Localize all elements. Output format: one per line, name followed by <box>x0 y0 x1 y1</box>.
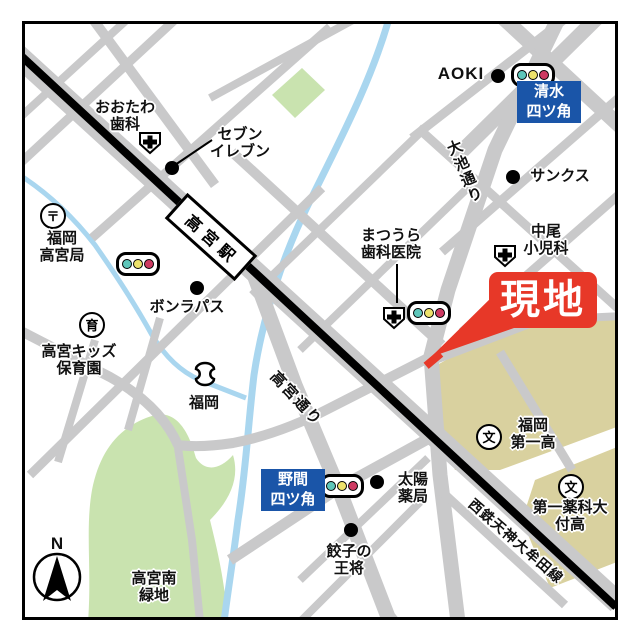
site-callout: 現地 <box>489 272 597 328</box>
nakao-pediatrics-label: 中尾 小児科 <box>523 223 568 258</box>
fukuoka-bank-label: 福岡 <box>189 394 219 411</box>
gyoza-ohsho-dot <box>344 523 358 537</box>
label-line: 高宮南 <box>131 570 176 587</box>
map-canvas: 高宮駅 〒 育 文 文 おおたわ 歯科 セブン <box>22 21 618 620</box>
label-line: 中尾 <box>523 223 568 240</box>
signal-station-west <box>116 252 160 276</box>
label-line: 第一高 <box>510 434 555 451</box>
noma-crossing-badge: 野間 四ツ角 <box>261 469 325 511</box>
signal-yellow-lamp <box>337 481 347 491</box>
fukuoka-daiichi-high-label: 福岡 第一高 <box>510 417 555 452</box>
signal-yellow-lamp <box>424 308 434 318</box>
matsuura-dental-label: まつうら 歯科医院 <box>361 227 421 262</box>
label-line: 小児科 <box>523 240 568 257</box>
signal-red-lamp <box>539 70 549 80</box>
map-frame: 高宮駅 〒 育 文 文 おおたわ 歯科 セブン <box>22 21 618 620</box>
shimizu-crossing-badge: 清水 四ツ角 <box>517 81 581 123</box>
label-line: 緑地 <box>131 587 176 604</box>
sunkus-dot <box>506 170 520 184</box>
signal-green-lamp <box>517 70 527 80</box>
nursery-icon: 育 <box>79 312 105 338</box>
label-line: 福岡 <box>39 230 84 247</box>
aoki-dot <box>491 69 505 83</box>
label-line: 高宮キッズ <box>41 343 116 360</box>
label-line: イレブン <box>210 143 270 160</box>
school-icon-yakka-high: 文 <box>558 474 584 500</box>
label-line: 第一薬科大 <box>532 499 607 516</box>
label-line: 太陽 <box>398 471 428 488</box>
seven-eleven-dot <box>165 161 179 175</box>
matsuura-cross-icon <box>384 308 404 328</box>
school-icon-daiichi-high: 文 <box>476 424 502 450</box>
signal-matsuura <box>407 301 451 325</box>
compass-north-label: N <box>51 534 63 554</box>
label-line: 福岡 <box>510 417 555 434</box>
label-line: 保育園 <box>41 360 116 377</box>
label-line: 高宮局 <box>39 247 84 264</box>
label-line: まつうら <box>361 227 421 244</box>
seven-eleven-label: セブン イレブン <box>210 126 270 161</box>
post-office-label: 福岡 高宮局 <box>39 230 84 265</box>
map-page: { "site_marker": { "label": "現地" }, "sta… <box>0 0 640 640</box>
compass-icon <box>34 554 80 601</box>
nakao-cross-icon <box>495 246 515 266</box>
signal-green-lamp <box>326 481 336 491</box>
post-office-icon: 〒 <box>40 203 66 229</box>
signal-yellow-lamp <box>528 70 538 80</box>
taiyo-pharmacy-label: 太陽 薬局 <box>398 471 428 506</box>
signal-green-lamp <box>122 259 132 269</box>
signal-red-lamp <box>348 481 358 491</box>
label-line: 薬局 <box>398 488 428 505</box>
signal-yellow-lamp <box>133 259 143 269</box>
label-line: おおたわ <box>95 99 155 116</box>
bonrepas-dot <box>190 281 204 295</box>
label-line: 歯科 <box>95 116 155 133</box>
bank-icon <box>196 363 214 385</box>
sunkus-label: サンクス <box>530 167 590 184</box>
signal-red-lamp <box>435 308 445 318</box>
label-line: 付高 <box>532 516 607 533</box>
badge-line: 野間 <box>261 470 325 490</box>
signal-red-lamp <box>144 259 154 269</box>
label-line: 王将 <box>326 560 371 577</box>
label-line: 餃子の <box>326 543 371 560</box>
takamiya-minami-park-label: 高宮南 緑地 <box>131 570 176 605</box>
taiyo-pharmacy-dot <box>370 475 384 489</box>
label-line: セブン <box>210 126 270 143</box>
daiichi-yakka-high-label: 第一薬科大 付高 <box>532 499 607 534</box>
signal-green-lamp <box>413 308 423 318</box>
aoki-label: AOKI <box>438 64 485 84</box>
gyoza-ohsho-label: 餃子の 王将 <box>326 543 371 578</box>
bonrepas-label: ボンラパス <box>150 298 225 315</box>
badge-line: 四ツ角 <box>261 490 325 510</box>
badge-line: 清水 <box>517 82 581 102</box>
otawa-dental-label: おおたわ 歯科 <box>95 99 155 134</box>
label-line: 歯科医院 <box>361 244 421 261</box>
badge-line: 四ツ角 <box>517 102 581 122</box>
kids-nursery-label: 高宮キッズ 保育園 <box>41 343 116 378</box>
signal-noma-crossing <box>320 474 364 498</box>
